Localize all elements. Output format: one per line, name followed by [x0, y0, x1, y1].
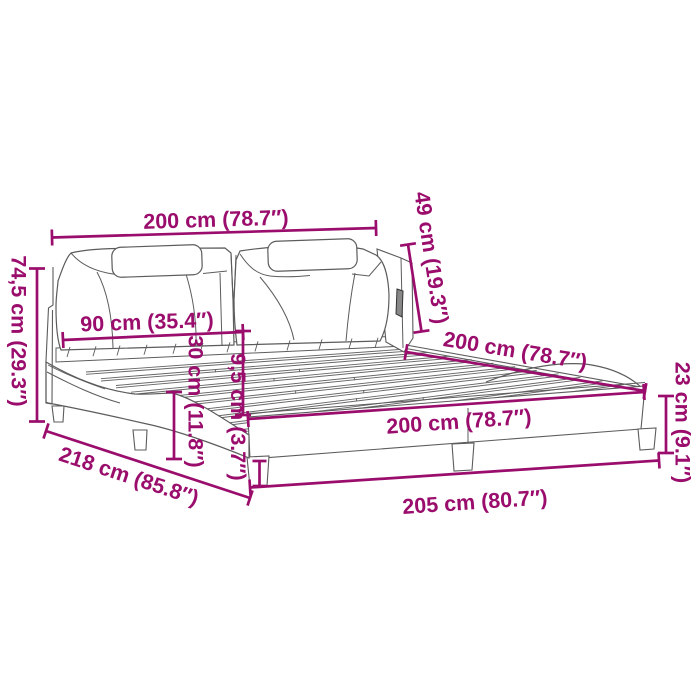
- svg-text:74,5 cm (29.3″): 74,5 cm (29.3″): [6, 255, 30, 406]
- svg-text:9,5 cm (3.7″): 9,5 cm (3.7″): [226, 353, 250, 480]
- svg-text:200 cm (78.7″): 200 cm (78.7″): [143, 206, 289, 234]
- svg-text:30 cm (11.8″): 30 cm (11.8″): [183, 335, 207, 467]
- svg-text:23 cm (9.1″): 23 cm (9.1″): [670, 362, 694, 483]
- svg-text:90 cm (35.4″): 90 cm (35.4″): [80, 308, 214, 337]
